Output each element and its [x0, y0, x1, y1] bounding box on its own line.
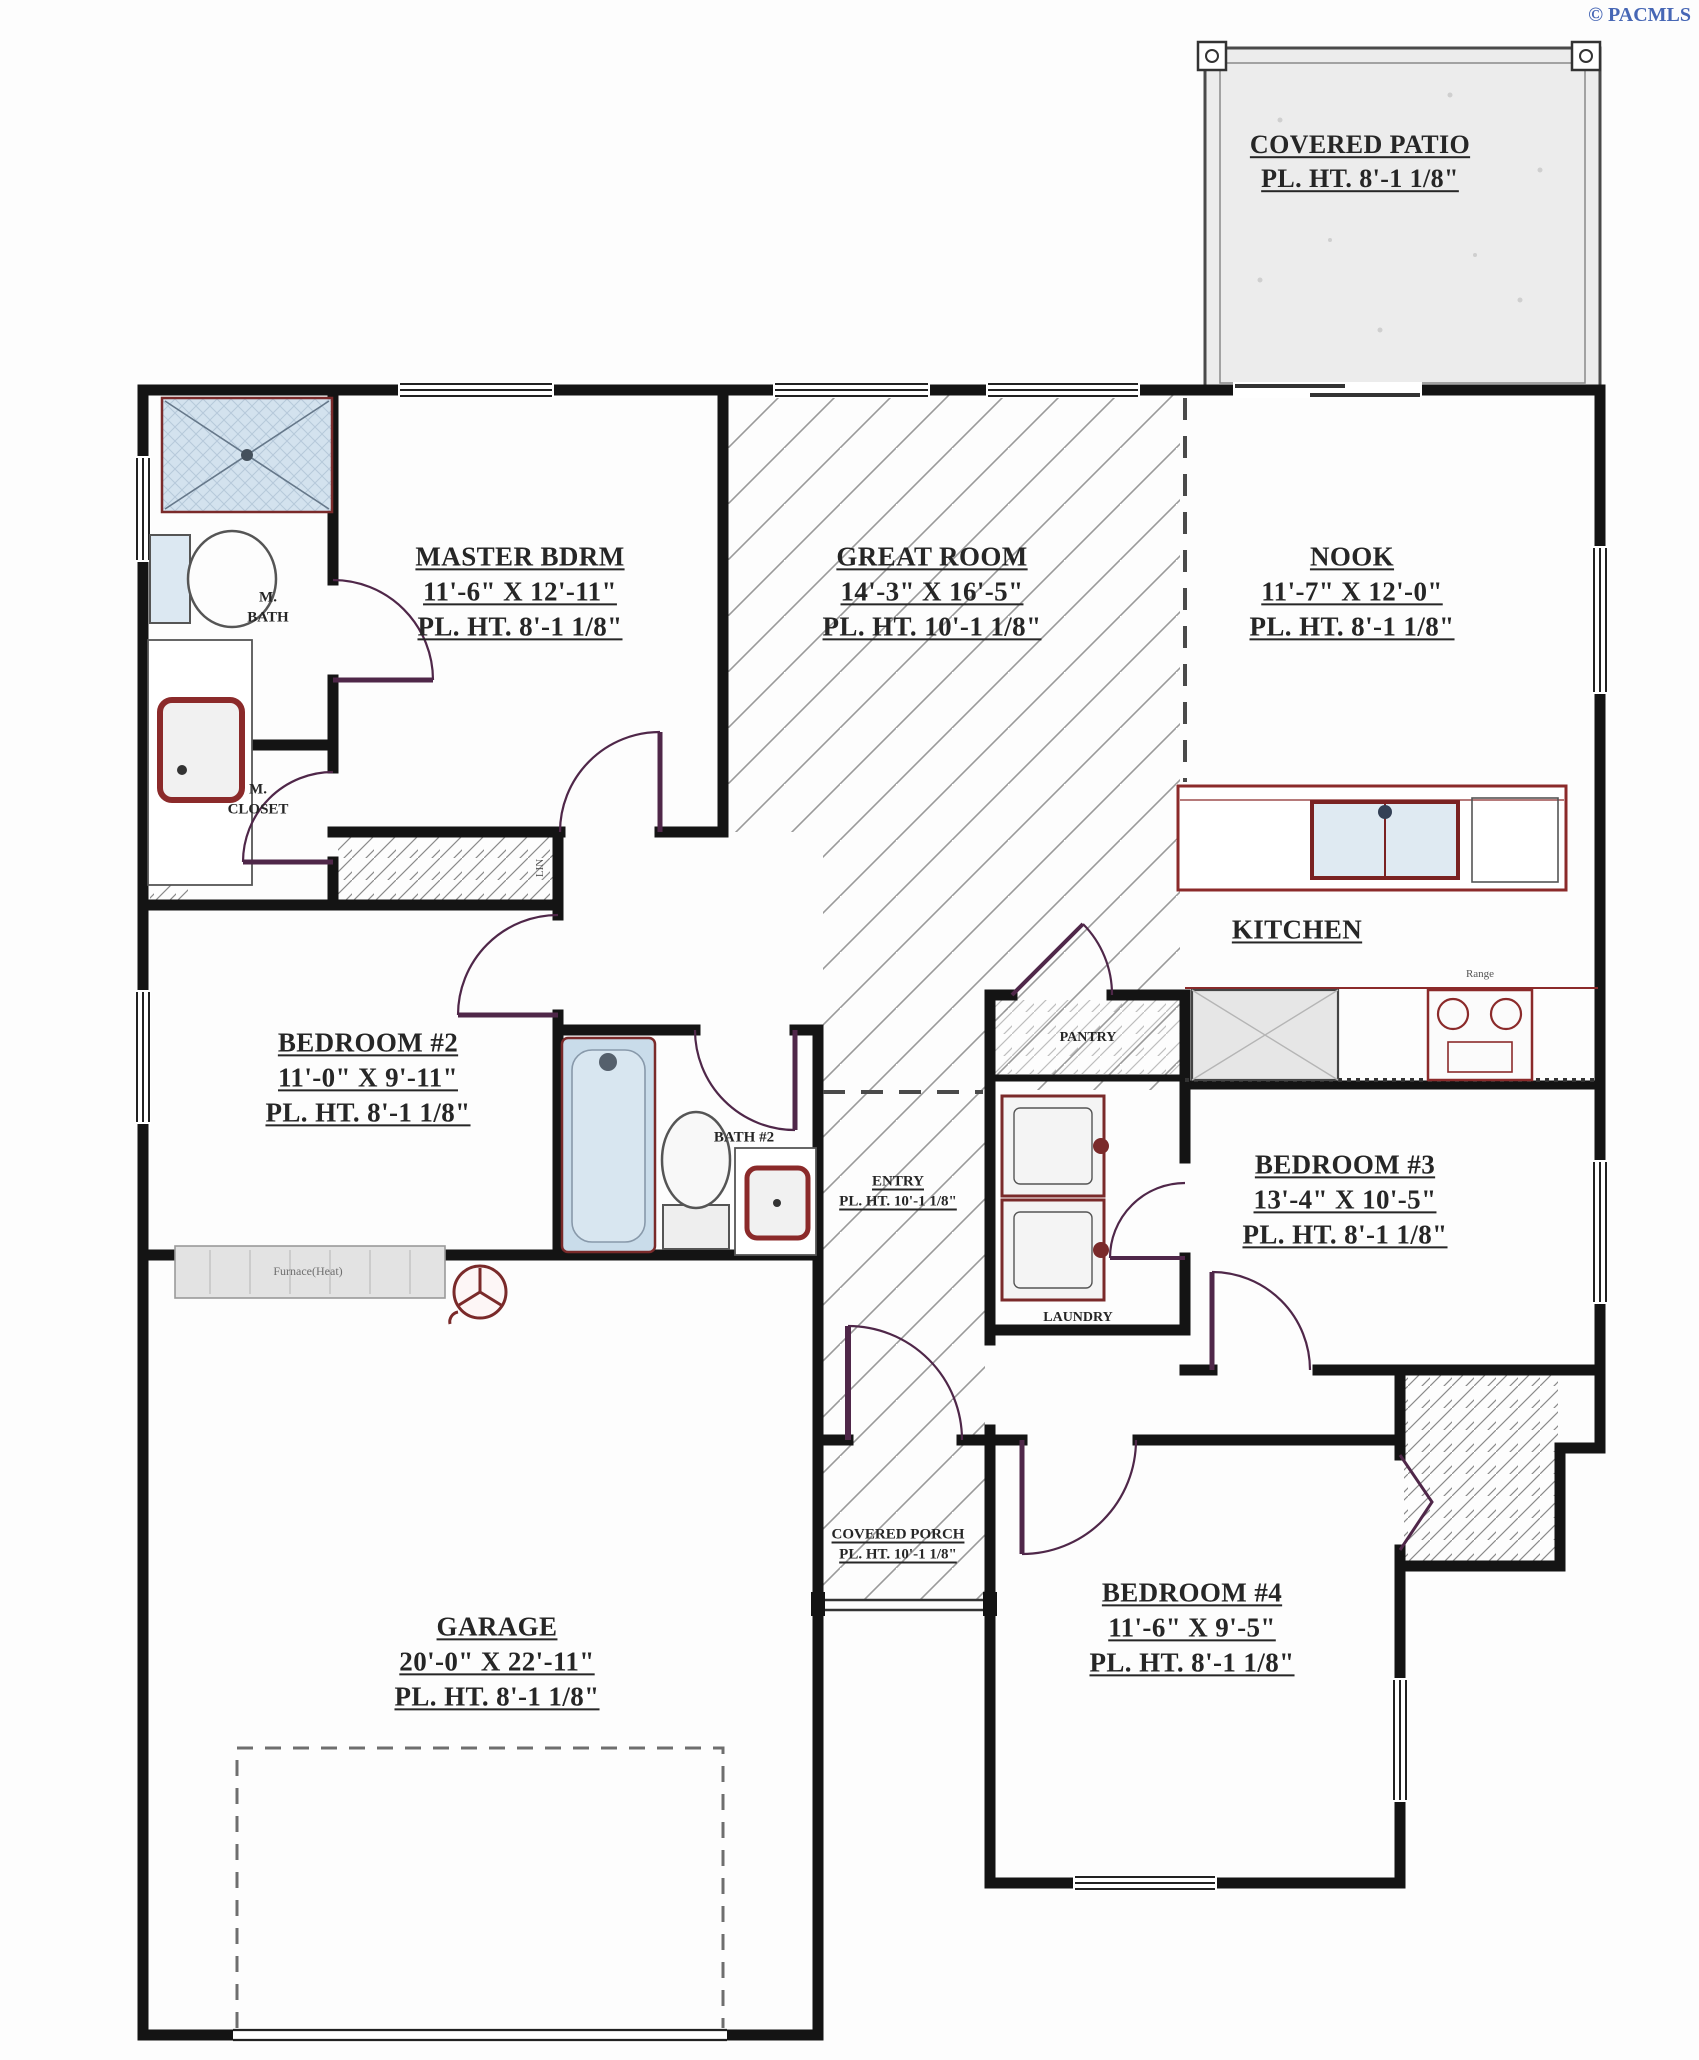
range — [1428, 990, 1532, 1080]
room-label-bedroom-4: BEDROOM #4 11'-6" X 9'-5" PL. HT. 8'-1 1… — [1089, 1575, 1294, 1680]
room-label-m-closet: M. CLOSET — [228, 781, 289, 820]
fridge — [1192, 990, 1338, 1080]
room-label-m-bath: M. BATH — [247, 589, 288, 628]
furnace-label: Furnace(Heat) — [273, 1264, 342, 1280]
kitchen-island — [1178, 786, 1566, 890]
room-label-garage: GARAGE 20'-0" X 22'-11" PL. HT. 8'-1 1/8… — [394, 1609, 599, 1714]
linen-closet-label: LIN — [533, 859, 547, 877]
bath2-tub — [562, 1038, 655, 1252]
master-shower — [162, 398, 332, 512]
room-label-great-room: GREAT ROOM 14'-3" X 16'-5" PL. HT. 10'-1… — [823, 539, 1042, 644]
room-label-covered-porch: COVERED PORCH PL. HT. 10'-1 1/8" — [832, 1526, 965, 1565]
range-label: Range — [1466, 967, 1494, 981]
copyright-watermark: © PACMLS — [1588, 4, 1691, 27]
room-label-master-bdrm: MASTER BDRM 11'-6" X 12'-11" PL. HT. 8'-… — [415, 539, 624, 644]
room-label-nook: NOOK 11'-7" X 12'-0" PL. HT. 8'-1 1/8" — [1249, 539, 1454, 644]
room-label-bedroom-3: BEDROOM #3 13'-4" X 10'-5" PL. HT. 8'-1 … — [1242, 1147, 1447, 1252]
room-label-covered-patio: COVERED PATIO PL. HT. 8'-1 1/8" — [1250, 128, 1470, 196]
room-label-pantry: PANTRY — [1060, 1029, 1117, 1047]
room-label-kitchen: KITCHEN — [1232, 912, 1362, 947]
room-label-bath-2: BATH #2 — [714, 1128, 774, 1148]
floorplan-drawing — [0, 0, 1699, 2060]
garage-door — [233, 1748, 727, 2043]
room-label-bedroom-2: BEDROOM #2 11'-0" X 9'-11" PL. HT. 8'-1 … — [265, 1025, 470, 1130]
water-heater-icon — [450, 1266, 506, 1324]
washer-dryer — [1002, 1096, 1109, 1300]
room-label-laundry: LAUNDRY — [1043, 1309, 1113, 1327]
bath2-vanity — [735, 1148, 816, 1255]
master-vanity — [148, 640, 252, 885]
room-label-entry: ENTRY PL. HT. 10'-1 1/8" — [839, 1173, 957, 1212]
floor-plan: © PACMLS COVERED PATIO PL. HT. 8'-1 1/8"… — [0, 0, 1699, 2060]
covered-patio-structure — [1198, 42, 1600, 390]
